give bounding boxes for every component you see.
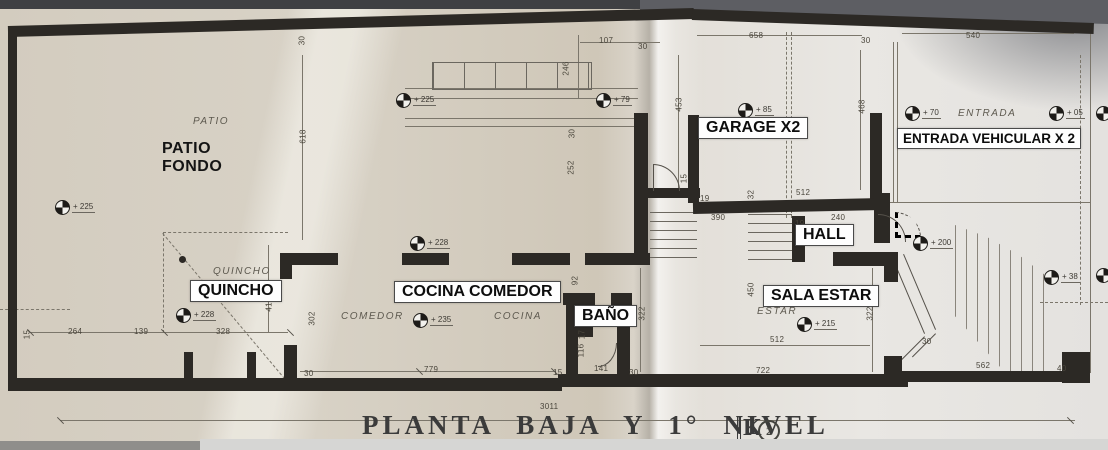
dimension-value: 453 <box>675 97 684 111</box>
dimension-value: 15 <box>679 174 688 184</box>
dimension-value: 19 <box>700 194 710 203</box>
level-marker-icon <box>176 308 191 323</box>
level-marker: + 05 <box>1049 106 1085 121</box>
dimension-value: 15 <box>22 330 31 340</box>
garage-right-wall <box>870 113 882 205</box>
level-marker <box>1096 268 1108 283</box>
wall-corner-block <box>884 356 902 376</box>
wall-bottom-b <box>558 374 908 387</box>
level-marker-icon <box>413 313 428 328</box>
dimension-value: 15 <box>553 368 563 377</box>
level-marker: + 235 <box>413 313 453 328</box>
dimension-value: 30 <box>304 369 314 378</box>
kitchen-left-wall <box>284 345 297 390</box>
dimension-value: 618 <box>299 129 308 143</box>
dimension-value: 30 <box>861 36 871 45</box>
level-marker: + 79 <box>596 93 632 108</box>
kitchen-north-wall <box>585 253 650 265</box>
level-marker: + 85 <box>738 103 774 118</box>
dimension-value: 40 <box>1057 364 1067 373</box>
dimension-value: 30 <box>567 129 576 139</box>
plan-text-comedor: COMEDOR <box>341 311 404 322</box>
dimension-value: 32 <box>746 190 755 200</box>
dimension-value: 139 <box>134 327 148 336</box>
dimension-value: 30 <box>297 36 306 46</box>
level-marker-icon <box>797 317 812 332</box>
level-marker-icon <box>905 106 920 121</box>
dimension-value: 30 <box>922 337 932 346</box>
room-label-garage: GARAGE X2 <box>698 117 808 139</box>
dimension-value: 30 <box>638 42 648 51</box>
quincho-post-dot <box>179 256 186 263</box>
level-marker <box>1096 106 1108 121</box>
quincho-post <box>247 352 256 380</box>
level-marker: + 70 <box>905 106 941 121</box>
dimension-value: 779 <box>424 365 438 374</box>
dimension-value: 246 <box>562 61 571 75</box>
dimension-value: 512 <box>770 335 784 344</box>
photo-bottom-band-left <box>0 441 202 450</box>
dimension-value: 264 <box>68 327 82 336</box>
level-marker-icon <box>1044 270 1059 285</box>
level-marker: + 200 <box>913 236 953 251</box>
plan-text-entrada: ENTRADA <box>958 108 1016 119</box>
dimension-value: 92 <box>570 276 579 286</box>
level-marker: + 38 <box>1044 270 1080 285</box>
dimension-value: 390 <box>711 213 725 222</box>
plan-text-estar: ESTAR <box>757 306 797 317</box>
room-label-hall: HALL <box>795 224 854 246</box>
room-label-entrada-vehicular: ENTRADA VEHICULAR X 2 <box>897 128 1081 149</box>
dimension-value: 116 <box>576 344 585 358</box>
room-label-bano: BAÑO <box>574 305 637 327</box>
kitchen-north-wall <box>512 253 570 265</box>
dimension-value: 240 <box>831 213 845 222</box>
patio-garage-wall <box>634 113 648 253</box>
level-marker-icon <box>1096 106 1108 121</box>
dimension-value: 540 <box>966 31 980 40</box>
photo-bottom-band-right <box>200 439 1108 450</box>
dimension-value: 107 <box>599 36 613 45</box>
dimension-value: 322 <box>638 306 647 320</box>
garage-door-leaf <box>653 164 654 191</box>
room-label-quincho: QUINCHO <box>190 280 282 302</box>
dimension-value: 468 <box>858 99 867 113</box>
level-marker: + 225 <box>55 200 95 215</box>
dimension-value: 17 <box>577 330 586 340</box>
sala-left-wall <box>884 252 898 282</box>
level-marker: + 228 <box>410 236 450 251</box>
level-marker: + 228 <box>176 308 216 323</box>
plan-text-quincho: QUINCHO <box>213 266 271 277</box>
wall-left <box>8 30 17 390</box>
level-marker: + 225 <box>396 93 436 108</box>
dimension-value: 512 <box>796 188 810 197</box>
dimension-value: 141 <box>594 364 608 373</box>
level-marker-icon <box>396 93 411 108</box>
level-marker-icon <box>913 236 928 251</box>
dimension-value: 658 <box>749 31 763 40</box>
room-label-sala-estar: SALA ESTAR <box>763 285 879 307</box>
dimension-value: 252 <box>567 160 576 174</box>
dimension-value: 302 <box>308 311 317 325</box>
level-marker-icon <box>738 103 753 118</box>
dimension-value: 328 <box>216 327 230 336</box>
internal-stair-flight-right <box>748 214 792 260</box>
level-marker-icon <box>410 236 425 251</box>
dimension-value: 30 <box>629 368 639 377</box>
level-marker: + 215 <box>797 317 837 332</box>
kitchen-corner <box>280 253 292 279</box>
dimension-value: 322 <box>866 306 875 320</box>
room-label-cocina-comedor: COCINA COMEDOR <box>394 281 561 303</box>
level-marker-icon <box>596 93 611 108</box>
plan-text-patio: PATIO <box>193 116 229 127</box>
level-marker-icon <box>55 200 70 215</box>
dimension-value: 722 <box>756 366 770 375</box>
plan-text-cocina: COCINA <box>494 311 542 322</box>
patio-fondo-text: PATIO FONDO <box>162 140 222 177</box>
wall-bottom-c <box>900 371 1072 382</box>
level-marker-icon <box>1096 268 1108 283</box>
internal-stair-flight-left <box>650 212 697 260</box>
kitchen-north-wall <box>402 253 449 265</box>
dimension-value: 562 <box>976 361 990 370</box>
floor-plan-photo: + 225 + 225 + 79 + 85 + 70 + 05 + 228 + … <box>0 0 1108 450</box>
dimension-value: 450 <box>747 282 756 296</box>
quincho-post <box>184 352 193 380</box>
level-marker-icon <box>1049 106 1064 121</box>
